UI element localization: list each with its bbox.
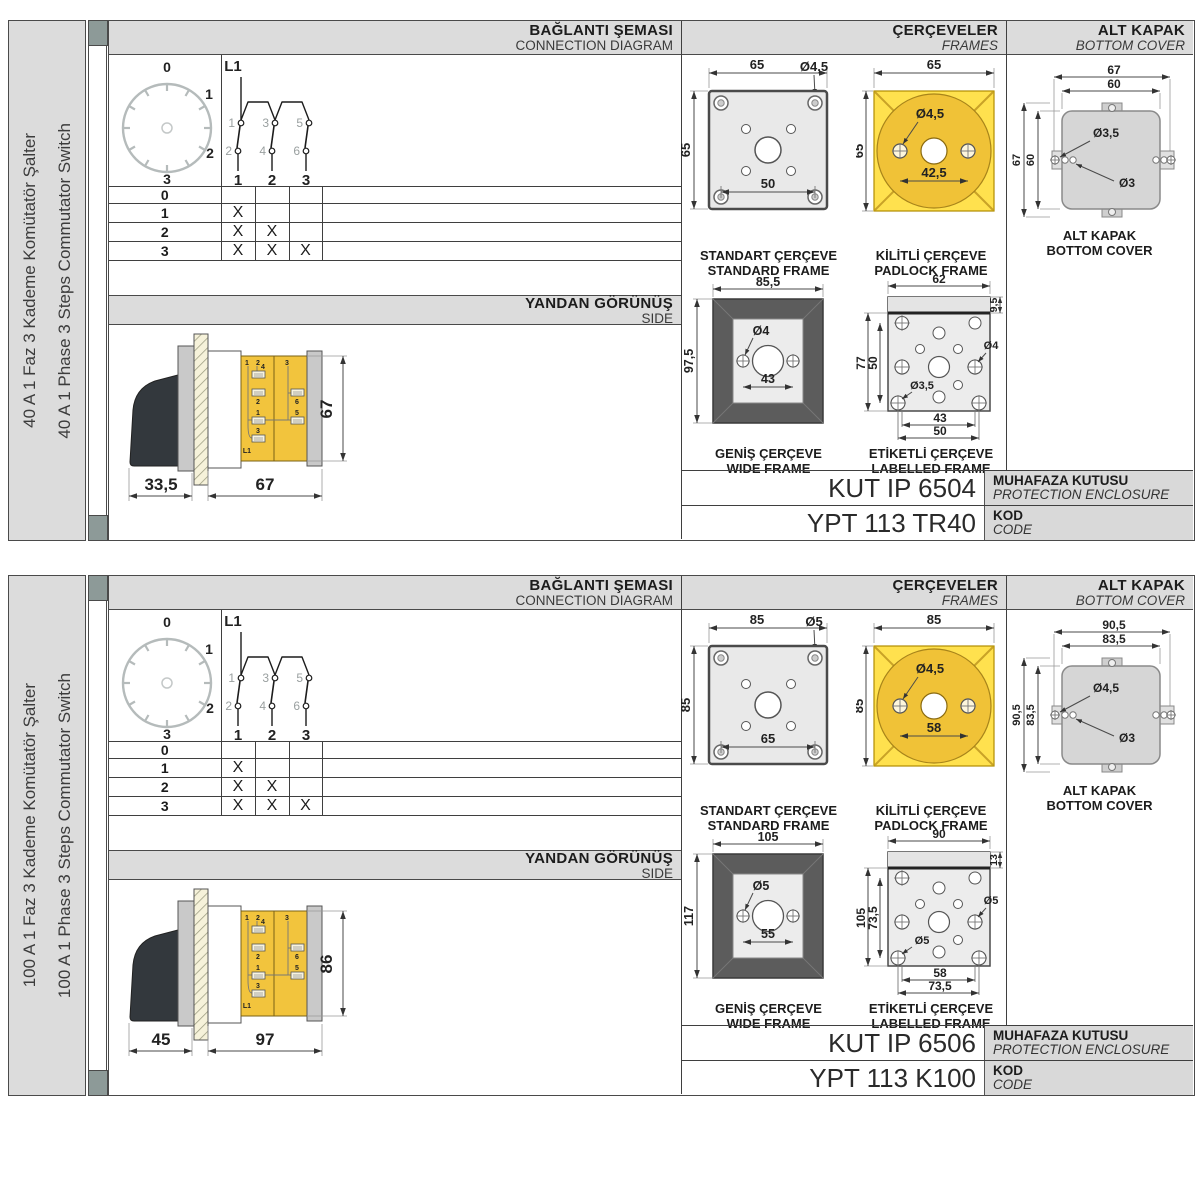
frames-title-en: FRAMES bbox=[682, 594, 998, 608]
dial-center bbox=[162, 678, 172, 688]
dial-pos-2: 2 bbox=[206, 145, 214, 161]
switch-neck bbox=[208, 906, 241, 1023]
dim-width: 90 bbox=[932, 830, 946, 841]
dim-depth: 97 bbox=[256, 1030, 275, 1049]
tb-label: 1 bbox=[245, 915, 249, 922]
dim-h-in: 83,5 bbox=[1025, 704, 1037, 725]
hole-label: Ø4,5 bbox=[800, 59, 828, 74]
dim-inner: 65 bbox=[761, 731, 775, 746]
bottom-cover-drawing: 90,5 83,5 90,5 83,5 bbox=[1006, 620, 1193, 778]
product-name-en: 100 A 1 Phase 3 Steps Commutator Switch bbox=[55, 673, 75, 998]
wide-frame-cell: 105 117 Ø5 bbox=[681, 830, 856, 1031]
terminal-6: 6 bbox=[293, 144, 300, 158]
side-view-drawing: 1 2 4 2 1 3 L1 3 6 5 86 45 97 bbox=[111, 880, 679, 1093]
mark-cell bbox=[289, 223, 322, 242]
mark-cell bbox=[289, 759, 322, 778]
dim-handle: 33,5 bbox=[144, 475, 177, 494]
output-1: 1 bbox=[234, 172, 242, 186]
binding-strip bbox=[88, 20, 107, 541]
product-name-en: 40 A 1 Phase 3 Steps Commutator Switch bbox=[55, 123, 75, 439]
dim-span1: 58 bbox=[933, 966, 947, 980]
dim-height-inner: 73,5 bbox=[866, 906, 880, 930]
standard-frame-drawing: 65 Ø4,5 65 50 bbox=[681, 55, 856, 243]
empty-cell bbox=[322, 759, 681, 778]
dim-span: 58 bbox=[927, 720, 941, 735]
mark-cell bbox=[221, 742, 255, 759]
header-title-tr: BAĞLANTI ŞEMASI bbox=[109, 23, 673, 39]
dim-height: 117 bbox=[682, 906, 696, 926]
product-code: YPT 113 K100 bbox=[681, 1061, 984, 1095]
strip-cap-top bbox=[88, 20, 108, 46]
mark-cell bbox=[289, 204, 322, 223]
dim-width: 85 bbox=[750, 612, 764, 627]
table-row: 0 bbox=[109, 187, 681, 204]
mark-cell: X bbox=[221, 778, 255, 797]
hole-label: Ø5 bbox=[753, 879, 770, 893]
mark-cell: X bbox=[221, 223, 255, 242]
dim-w-out: 67 bbox=[1107, 65, 1121, 77]
enclosure-label-tr: MUHAFAZA KUTUSU bbox=[993, 473, 1193, 488]
empty-cell bbox=[322, 204, 681, 223]
dim-span: 43 bbox=[761, 372, 775, 386]
terminal-4: 4 bbox=[259, 699, 266, 713]
dial-pos-1: 1 bbox=[205, 641, 213, 657]
terminal-2: 2 bbox=[225, 144, 232, 158]
enclosure-label: MUHAFAZA KUTUSU PROTECTION ENCLOSURE bbox=[984, 1026, 1193, 1060]
dim-w-out: 90,5 bbox=[1102, 620, 1126, 632]
product-code: YPT 113 TR40 bbox=[681, 506, 984, 540]
table-row: 3 X X X bbox=[109, 242, 681, 261]
dim-span2: 50 bbox=[933, 424, 947, 438]
product-name-tr: 40 A 1 Faz 3 Kademe Komütatör Şalter bbox=[20, 133, 40, 428]
dial-center bbox=[162, 123, 172, 133]
hole-label-bottom: Ø5 bbox=[915, 935, 930, 947]
side-view-header: YANDAN GÖRÜNÜŞ SIDE bbox=[109, 850, 681, 880]
dim-width: 65 bbox=[927, 57, 941, 72]
standard-frame-cell: 65 Ø4,5 65 50 bbox=[681, 55, 856, 278]
tb-label: 1 bbox=[245, 360, 249, 367]
mounting-panel-hatched bbox=[194, 334, 208, 485]
contact-truth-table: 0 1 X 2 X X 3 X X X bbox=[109, 186, 681, 261]
hole-label: Ø4,5 bbox=[916, 106, 944, 121]
mark-cell: X bbox=[255, 797, 289, 816]
center-hole bbox=[755, 137, 781, 163]
dim-h-in: 60 bbox=[1025, 154, 1037, 166]
dim-height: 97,5 bbox=[682, 349, 696, 373]
dim-height: 86 bbox=[317, 955, 336, 974]
code-row: YPT 113 K100 KOD CODE bbox=[681, 1060, 1193, 1095]
product-panel: 40 A 1 Faz 3 Kademe Komütatör Şalter 40 … bbox=[8, 20, 1195, 541]
tb-label: L1 bbox=[243, 448, 251, 455]
dim-inner: 50 bbox=[761, 176, 775, 191]
bottom-cover-drawing: 67 60 67 60 bbox=[1006, 65, 1193, 223]
mark-cell: X bbox=[221, 759, 255, 778]
frames-title-en: FRAMES bbox=[682, 39, 998, 53]
table-row: 2 X X bbox=[109, 223, 681, 242]
front-plate bbox=[178, 346, 194, 471]
dial-pos-3: 3 bbox=[163, 171, 171, 186]
hole-label: Ø4 bbox=[753, 324, 770, 338]
dim-w-in: 83,5 bbox=[1102, 632, 1126, 646]
code-label-tr: KOD bbox=[993, 508, 1193, 523]
dim-band: 9,5 bbox=[988, 298, 1000, 313]
dim-h-out: 90,5 bbox=[1011, 704, 1023, 725]
hole2-label: Ø3 bbox=[1119, 176, 1135, 190]
mark-cell bbox=[255, 742, 289, 759]
label-band bbox=[888, 852, 990, 868]
mark-cell bbox=[255, 759, 289, 778]
terminal-6: 6 bbox=[293, 699, 300, 713]
cover-title-en: BOTTOM COVER bbox=[1007, 594, 1185, 608]
table-row: 2 X X bbox=[109, 778, 681, 797]
dim-width: 105 bbox=[758, 830, 779, 844]
side-title-en: SIDE bbox=[109, 867, 673, 881]
mark-cell bbox=[289, 187, 322, 204]
frames-header: ÇERÇEVELER FRAMES bbox=[681, 21, 1006, 55]
enclosure-label-en: PROTECTION ENCLOSURE bbox=[993, 1043, 1193, 1057]
labelled-frame-drawing: 62 9,5 77 50 bbox=[856, 275, 1006, 441]
bottom-cover-cell: 67 60 67 60 bbox=[1006, 65, 1193, 258]
hole2-label: Ø3 bbox=[1119, 731, 1135, 745]
tb-label: 2 bbox=[256, 360, 260, 367]
contact-truth-table: 0 1 X 2 X X 3 X X X bbox=[109, 741, 681, 816]
wide-frame-drawing: 105 117 Ø5 bbox=[681, 830, 856, 996]
mark-cell bbox=[289, 742, 322, 759]
bottom-cover-cell: 90,5 83,5 90,5 83,5 bbox=[1006, 620, 1193, 813]
position-cell: 3 bbox=[109, 797, 221, 816]
bottom-cover-header: ALT KAPAK BOTTOM COVER bbox=[1006, 576, 1193, 610]
dim-handle: 45 bbox=[152, 1030, 171, 1049]
dim-w-in: 60 bbox=[1107, 77, 1121, 91]
standard-frame-caption-tr: STANDART ÇERÇEVE bbox=[681, 249, 856, 263]
hole-label: Ø5 bbox=[805, 614, 822, 629]
dial-pos-0: 0 bbox=[163, 614, 171, 630]
table-row: 0 bbox=[109, 742, 681, 759]
mark-cell bbox=[255, 204, 289, 223]
wide-frame-caption-tr: GENİŞ ÇERÇEVE bbox=[681, 447, 856, 461]
side-view-drawing: 1 2 4 2 1 3 L1 3 6 5 67 33,5 67 bbox=[111, 325, 679, 538]
code-label: KOD CODE bbox=[984, 506, 1193, 540]
frames-header: ÇERÇEVELER FRAMES bbox=[681, 576, 1006, 610]
output-2: 2 bbox=[268, 172, 276, 186]
empty-cell bbox=[322, 742, 681, 759]
label-band bbox=[888, 297, 990, 313]
strip-cap-top bbox=[88, 575, 108, 601]
labelled-frame-caption-tr: ETİKETLİ ÇERÇEVE bbox=[856, 447, 1006, 461]
tb-label: 3 bbox=[285, 360, 289, 367]
hole-label: Ø4,5 bbox=[916, 661, 944, 676]
enclosure-code: KUT IP 6504 bbox=[681, 471, 984, 505]
code-label-tr: KOD bbox=[993, 1063, 1193, 1078]
dim-height: 85 bbox=[856, 699, 866, 713]
cover-caption-en: BOTTOM COVER bbox=[1006, 799, 1193, 813]
dim-height: 67 bbox=[317, 400, 336, 419]
binding-strip bbox=[88, 575, 107, 1096]
cover-caption-tr: ALT KAPAK bbox=[1006, 229, 1193, 243]
enclosure-label-en: PROTECTION ENCLOSURE bbox=[993, 488, 1193, 502]
center-hole bbox=[921, 138, 947, 164]
enclosure-label-tr: MUHAFAZA KUTUSU bbox=[993, 1028, 1193, 1043]
dim-height: 65 bbox=[856, 144, 866, 158]
bottom-cover-header: ALT KAPAK BOTTOM COVER bbox=[1006, 21, 1193, 55]
tb-label: 5 bbox=[295, 410, 299, 417]
switch-position-dial: 0 1 2 3 bbox=[109, 55, 221, 186]
cover-title-en: BOTTOM COVER bbox=[1007, 39, 1185, 53]
enclosure-row: KUT IP 6506 MUHAFAZA KUTUSU PROTECTION E… bbox=[681, 1025, 1193, 1060]
terminal-3: 3 bbox=[262, 116, 269, 130]
padlock-frame-caption-tr: KİLİTLİ ÇERÇEVE bbox=[856, 804, 1006, 818]
dial-pos-1: 1 bbox=[205, 86, 213, 102]
cover-caption-tr: ALT KAPAK bbox=[1006, 784, 1193, 798]
standard-frame-cell: 85 Ø5 85 65 bbox=[681, 610, 856, 833]
input-label: L1 bbox=[224, 613, 242, 630]
empty-cell bbox=[322, 797, 681, 816]
strip-cap-bottom bbox=[88, 1070, 108, 1096]
enclosure-label: MUHAFAZA KUTUSU PROTECTION ENCLOSURE bbox=[984, 471, 1193, 505]
terminal-3: 3 bbox=[262, 671, 269, 685]
position-cell: 0 bbox=[109, 742, 221, 759]
mark-cell: X bbox=[255, 778, 289, 797]
dim-span2: 73,5 bbox=[928, 979, 952, 993]
dim-height-inner: 50 bbox=[866, 356, 880, 370]
code-row: YPT 113 TR40 KOD CODE bbox=[681, 505, 1193, 540]
labelled-frame-drawing: 90 13 105 73,5 bbox=[856, 830, 1006, 996]
code-label-en: CODE bbox=[993, 1078, 1193, 1092]
center-hole bbox=[921, 693, 947, 719]
mark-cell bbox=[221, 187, 255, 204]
mark-cell: X bbox=[221, 242, 255, 261]
cover-caption-en: BOTTOM COVER bbox=[1006, 244, 1193, 258]
mark-cell bbox=[289, 778, 322, 797]
side-title-tr: YANDAN GÖRÜNÜŞ bbox=[109, 296, 673, 312]
header-title-en: CONNECTION DIAGRAM bbox=[109, 39, 673, 53]
dim-width: 62 bbox=[932, 275, 946, 286]
dim-h-out: 67 bbox=[1011, 154, 1023, 166]
dim-width: 65 bbox=[750, 57, 764, 72]
frames-title-tr: ÇERÇEVELER bbox=[682, 578, 998, 594]
wide-frame-caption-tr: GENİŞ ÇERÇEVE bbox=[681, 1002, 856, 1016]
code-label-en: CODE bbox=[993, 523, 1193, 537]
hole-label-right: Ø4 bbox=[984, 340, 1000, 352]
cover-title-tr: ALT KAPAK bbox=[1007, 578, 1185, 594]
tb-label: 1 bbox=[256, 410, 260, 417]
tb-label: 6 bbox=[295, 399, 299, 406]
mark-cell: X bbox=[221, 204, 255, 223]
position-cell: 2 bbox=[109, 778, 221, 797]
dim-width: 85 bbox=[927, 612, 941, 627]
tb-label: 3 bbox=[256, 428, 260, 435]
enclosure-row: KUT IP 6504 MUHAFAZA KUTUSU PROTECTION E… bbox=[681, 470, 1193, 505]
position-cell: 0 bbox=[109, 187, 221, 204]
mark-cell: X bbox=[255, 223, 289, 242]
front-plate bbox=[178, 901, 194, 1026]
switch-neck bbox=[208, 351, 241, 468]
position-cell: 1 bbox=[109, 759, 221, 778]
position-cell: 1 bbox=[109, 204, 221, 223]
standard-frame-drawing: 85 Ø5 85 65 bbox=[681, 610, 856, 798]
mark-cell: X bbox=[289, 797, 322, 816]
padlock-frame-drawing: 65 65 Ø4,5 bbox=[856, 55, 1006, 243]
dim-height: 65 bbox=[681, 143, 693, 157]
dim-span: 55 bbox=[761, 927, 775, 941]
hole-label-right: Ø5 bbox=[984, 895, 999, 907]
side-view-header: YANDAN GÖRÜNÜŞ SIDE bbox=[109, 295, 681, 325]
connection-diagram-header: BAĞLANTI ŞEMASI CONNECTION DIAGRAM bbox=[109, 576, 681, 610]
labelled-frame-cell: 62 9,5 77 50 bbox=[856, 275, 1006, 476]
dial-pos-2: 2 bbox=[206, 700, 214, 716]
mark-cell: X bbox=[289, 242, 322, 261]
output-2: 2 bbox=[268, 727, 276, 741]
labelled-frame-caption-tr: ETİKETLİ ÇERÇEVE bbox=[856, 1002, 1006, 1016]
enclosure-code: KUT IP 6506 bbox=[681, 1026, 984, 1060]
mark-cell: X bbox=[255, 242, 289, 261]
dim-height: 85 bbox=[681, 698, 693, 712]
panel-content: BAĞLANTI ŞEMASI CONNECTION DIAGRAM ÇERÇE… bbox=[108, 20, 1195, 541]
terminal-1: 1 bbox=[228, 671, 235, 685]
output-3: 3 bbox=[302, 727, 310, 741]
table-row: 1 X bbox=[109, 204, 681, 223]
padlock-frame-cell: 85 85 Ø4,5 bbox=[856, 610, 1006, 833]
switch-handle bbox=[130, 930, 178, 1021]
terminal-5: 5 bbox=[296, 671, 303, 685]
input-label: L1 bbox=[224, 58, 242, 75]
header-title-tr: BAĞLANTI ŞEMASI bbox=[109, 578, 673, 594]
frames-title-tr: ÇERÇEVELER bbox=[682, 23, 998, 39]
hole1-label: Ø4,5 bbox=[1093, 681, 1119, 695]
tb-label: 1 bbox=[256, 965, 260, 972]
hole1-label: Ø3,5 bbox=[1093, 126, 1119, 140]
position-cell: 2 bbox=[109, 223, 221, 242]
center-hole bbox=[755, 692, 781, 718]
mark-cell: X bbox=[221, 797, 255, 816]
strip-cap-bottom bbox=[88, 515, 108, 541]
switch-handle bbox=[130, 375, 178, 466]
empty-cell bbox=[322, 242, 681, 261]
product-sidebar: 100 A 1 Faz 3 Kademe Komütatör Şalter 10… bbox=[8, 575, 86, 1096]
table-row: 1 X bbox=[109, 759, 681, 778]
header-title-en: CONNECTION DIAGRAM bbox=[109, 594, 673, 608]
side-title-tr: YANDAN GÖRÜNÜŞ bbox=[109, 851, 673, 867]
dim-width: 85,5 bbox=[756, 275, 780, 289]
panel-content: BAĞLANTI ŞEMASI CONNECTION DIAGRAM ÇERÇE… bbox=[108, 575, 1195, 1096]
mark-cell bbox=[255, 187, 289, 204]
tb-label: 2 bbox=[256, 399, 260, 406]
terminal-1: 1 bbox=[228, 116, 235, 130]
wide-frame-cell: 85,5 97,5 Ø4 bbox=[681, 275, 856, 476]
cover-title-tr: ALT KAPAK bbox=[1007, 23, 1185, 39]
switch-position-dial: 0 1 2 3 bbox=[109, 610, 221, 741]
wiring-schematic: L1 1 2 3 4 5 6 1 2 3 bbox=[221, 610, 679, 741]
output-3: 3 bbox=[302, 172, 310, 186]
dim-depth: 67 bbox=[256, 475, 275, 494]
mounting-panel-hatched bbox=[194, 889, 208, 1040]
tb-label: 4 bbox=[261, 919, 265, 926]
dial-pos-0: 0 bbox=[163, 59, 171, 75]
connection-diagram-header: BAĞLANTI ŞEMASI CONNECTION DIAGRAM bbox=[109, 21, 681, 55]
empty-cell bbox=[322, 223, 681, 242]
hole-label-bottom: Ø3,5 bbox=[910, 380, 934, 392]
padlock-frame-drawing: 85 85 Ø4,5 bbox=[856, 610, 1006, 798]
dim-span: 42,5 bbox=[921, 165, 946, 180]
terminal-5: 5 bbox=[296, 116, 303, 130]
tb-label: 2 bbox=[256, 915, 260, 922]
tb-label: 3 bbox=[256, 983, 260, 990]
tb-label: 2 bbox=[256, 954, 260, 961]
tb-label: 4 bbox=[261, 364, 265, 371]
dim-band: 13 bbox=[988, 854, 1000, 866]
code-label: KOD CODE bbox=[984, 1061, 1193, 1095]
empty-cell bbox=[322, 778, 681, 797]
empty-cell bbox=[322, 187, 681, 204]
wide-frame-drawing: 85,5 97,5 Ø4 bbox=[681, 275, 856, 441]
product-sidebar: 40 A 1 Faz 3 Kademe Komütatör Şalter 40 … bbox=[8, 20, 86, 541]
tb-label: 3 bbox=[285, 915, 289, 922]
side-title-en: SIDE bbox=[109, 312, 673, 326]
dim-span1: 43 bbox=[933, 411, 947, 425]
dial-pos-3: 3 bbox=[163, 726, 171, 741]
terminal-4: 4 bbox=[259, 144, 266, 158]
padlock-frame-cell: 65 65 Ø4,5 bbox=[856, 55, 1006, 278]
output-1: 1 bbox=[234, 727, 242, 741]
product-panel: 100 A 1 Faz 3 Kademe Komütatör Şalter 10… bbox=[8, 575, 1195, 1096]
padlock-frame-caption-tr: KİLİTLİ ÇERÇEVE bbox=[856, 249, 1006, 263]
product-name-tr: 100 A 1 Faz 3 Kademe Komütatör Şalter bbox=[20, 683, 40, 987]
table-row: 3 X X X bbox=[109, 797, 681, 816]
standard-frame-caption-tr: STANDART ÇERÇEVE bbox=[681, 804, 856, 818]
tb-label: L1 bbox=[243, 1003, 251, 1010]
labelled-frame-cell: 90 13 105 73,5 bbox=[856, 830, 1006, 1031]
position-cell: 3 bbox=[109, 242, 221, 261]
wiring-schematic: L1 1 2 3 4 5 6 1 2 3 bbox=[221, 55, 679, 186]
tb-label: 6 bbox=[295, 954, 299, 961]
terminal-2: 2 bbox=[225, 699, 232, 713]
tb-label: 5 bbox=[295, 965, 299, 972]
